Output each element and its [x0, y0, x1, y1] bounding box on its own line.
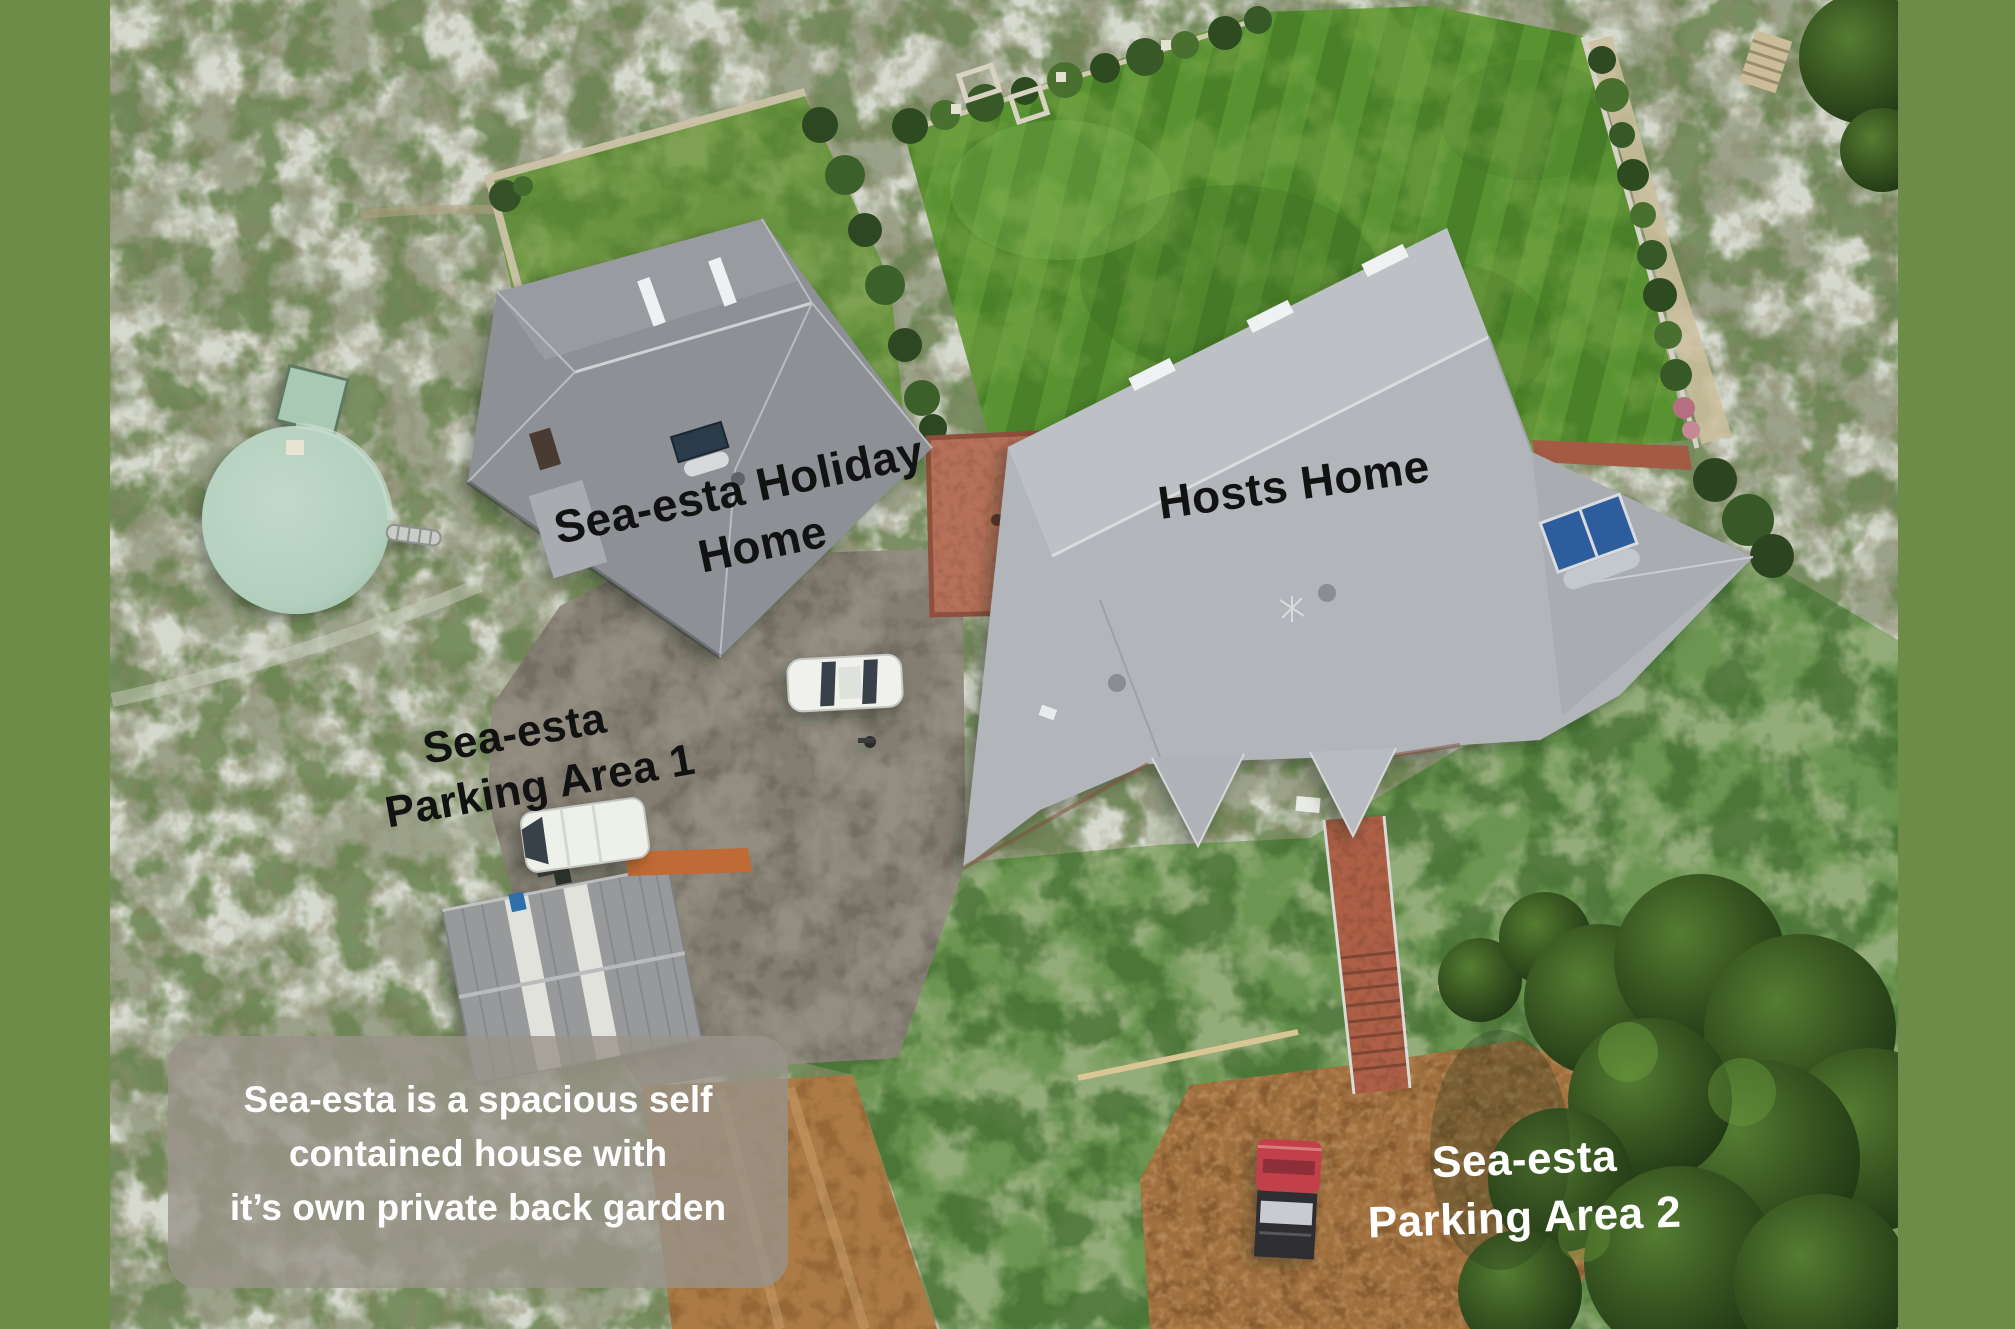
caption-box: Sea-esta is a spacious self contained ho… [168, 1036, 788, 1288]
caption-line1: Sea-esta is a spacious self [244, 1079, 714, 1120]
caption-line2: contained house with [289, 1133, 667, 1174]
red-ute [1252, 1138, 1322, 1259]
label-parking2-line1: Sea-esta [1431, 1132, 1618, 1187]
aerial-photo: Sea-esta Holiday Home Hosts Home Sea-est… [0, 0, 2015, 1329]
caption-line3: it’s own private back garden [230, 1187, 726, 1228]
